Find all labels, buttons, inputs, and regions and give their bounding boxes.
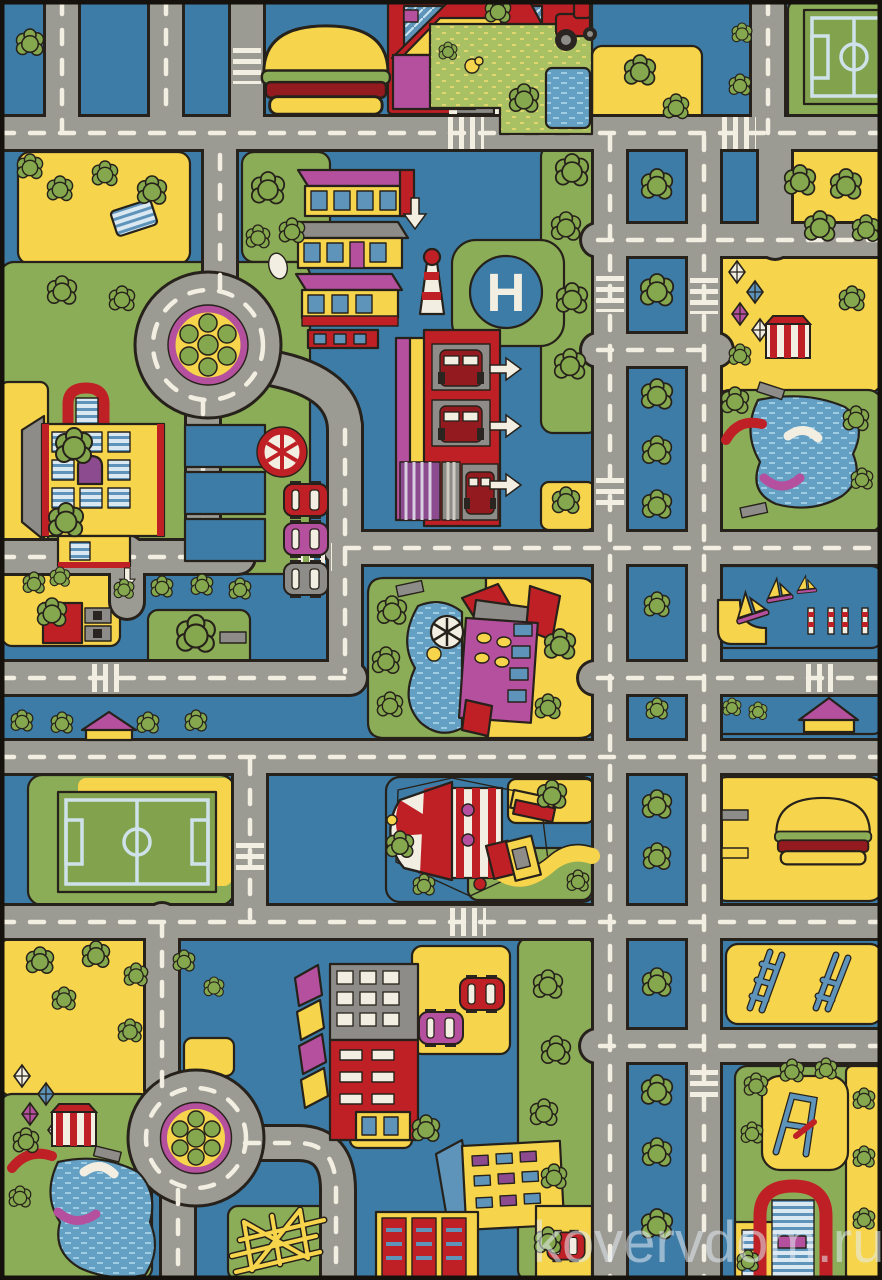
burger-icon bbox=[262, 26, 390, 114]
car-icon bbox=[460, 975, 504, 1013]
car-icon bbox=[284, 481, 328, 519]
soccer-field-top-right bbox=[804, 10, 882, 104]
fire-truck-bay bbox=[432, 400, 490, 446]
ticket-booth-icon bbox=[766, 316, 810, 358]
helipad: H bbox=[470, 256, 542, 328]
row-house bbox=[376, 1212, 478, 1280]
soccer-field-left bbox=[58, 792, 216, 892]
fire-station bbox=[396, 330, 500, 526]
park-pond bbox=[750, 396, 858, 507]
school-driveways bbox=[185, 425, 265, 561]
helipad-letter: H bbox=[487, 263, 526, 323]
fire-truck-bay bbox=[462, 464, 498, 520]
duck-icon bbox=[427, 647, 441, 661]
burger-icon bbox=[775, 798, 871, 864]
garage-doors bbox=[400, 462, 460, 520]
parked-cars bbox=[284, 481, 328, 598]
playground-bottom-right bbox=[762, 1076, 848, 1170]
roundabout-lower-island bbox=[161, 1103, 232, 1174]
bench-strip bbox=[220, 632, 246, 643]
rug-product-photo: H bbox=[0, 0, 882, 1280]
watermark: kovervdom.ru bbox=[533, 1210, 882, 1275]
play-rug-illustration: H bbox=[0, 0, 882, 1280]
car-icon bbox=[419, 1009, 463, 1047]
car-icon bbox=[284, 520, 328, 558]
fire-truck-bay bbox=[432, 344, 490, 390]
lighthouse-icon bbox=[420, 249, 444, 314]
car-icon bbox=[284, 560, 328, 598]
no-entry-sign-icon bbox=[257, 427, 307, 477]
roundabout-upper-island bbox=[168, 305, 248, 385]
ticket-booth-icon bbox=[52, 1104, 96, 1146]
